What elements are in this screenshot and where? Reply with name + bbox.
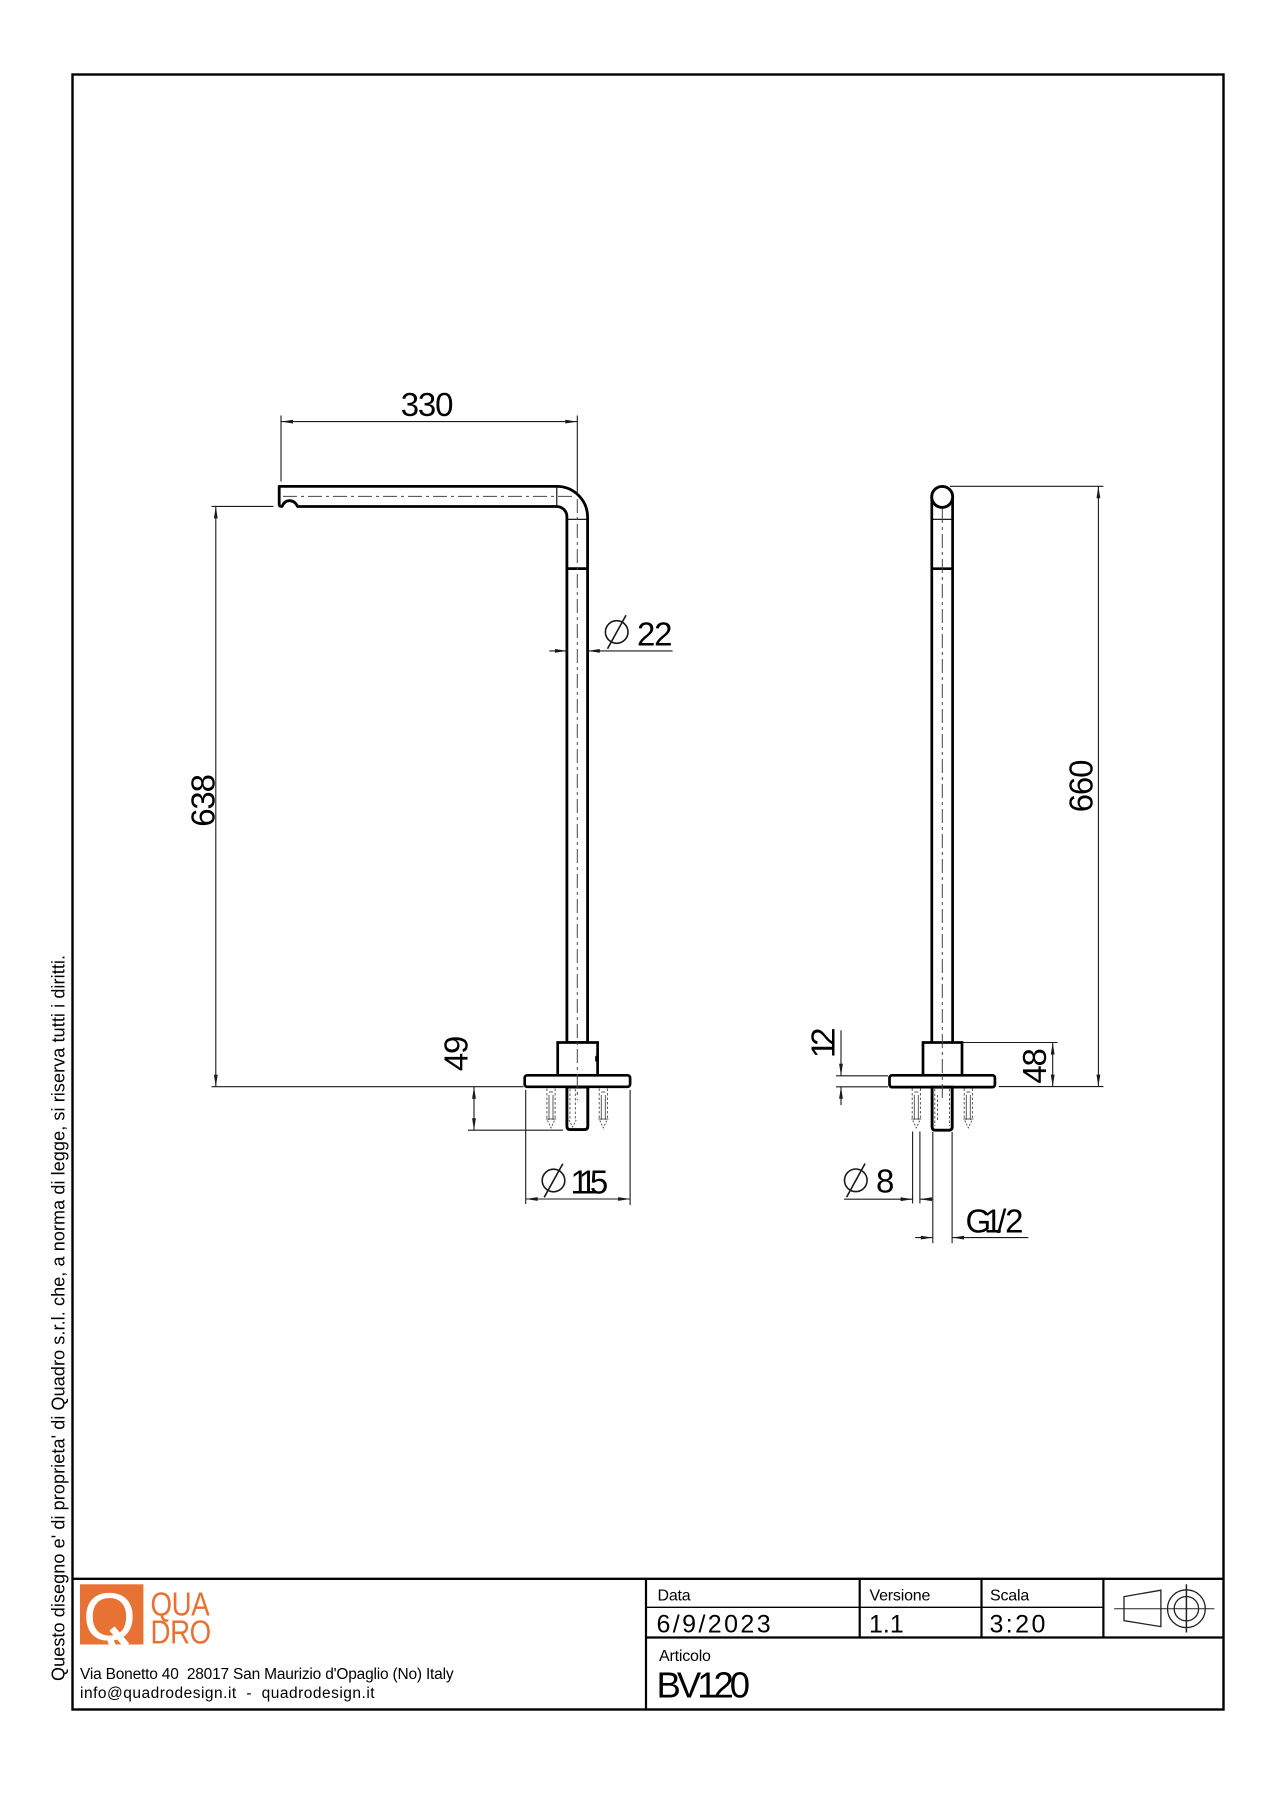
svg-text:Questo disegno e' di proprieta: Questo disegno e' di proprieta' di Quadr… — [49, 955, 69, 1681]
svg-text:6/9/2023: 6/9/2023 — [657, 1611, 774, 1639]
svg-text:Data: Data — [658, 1588, 691, 1605]
svg-text:330: 330 — [401, 386, 453, 423]
svg-text:G1/2: G1/2 — [966, 1203, 1023, 1240]
svg-text:Versione: Versione — [870, 1588, 931, 1605]
svg-text:12: 12 — [805, 1029, 842, 1058]
svg-text:Articolo: Articolo — [659, 1648, 711, 1665]
svg-text:1.1: 1.1 — [869, 1611, 904, 1639]
svg-text:660: 660 — [1063, 760, 1100, 812]
svg-text:info@quadrodesign.it - quadr: info@quadrodesign.it - quadrodesign.it — [80, 1685, 375, 1702]
svg-text:49: 49 — [438, 1037, 475, 1071]
svg-text:Via Bonetto 40 28017 San Maur: Via Bonetto 40 28017 San Maurizio d'Opag… — [80, 1666, 454, 1683]
svg-text:DRO: DRO — [151, 1614, 211, 1651]
svg-text:Scala: Scala — [990, 1588, 1029, 1605]
svg-text:8: 8 — [876, 1163, 893, 1200]
svg-text:48: 48 — [1016, 1049, 1053, 1083]
svg-text:22: 22 — [637, 616, 671, 653]
svg-text:3:20: 3:20 — [990, 1611, 1048, 1639]
svg-text:BV120: BV120 — [657, 1665, 749, 1706]
svg-text:638: 638 — [185, 775, 222, 826]
svg-text:115: 115 — [571, 1164, 608, 1201]
